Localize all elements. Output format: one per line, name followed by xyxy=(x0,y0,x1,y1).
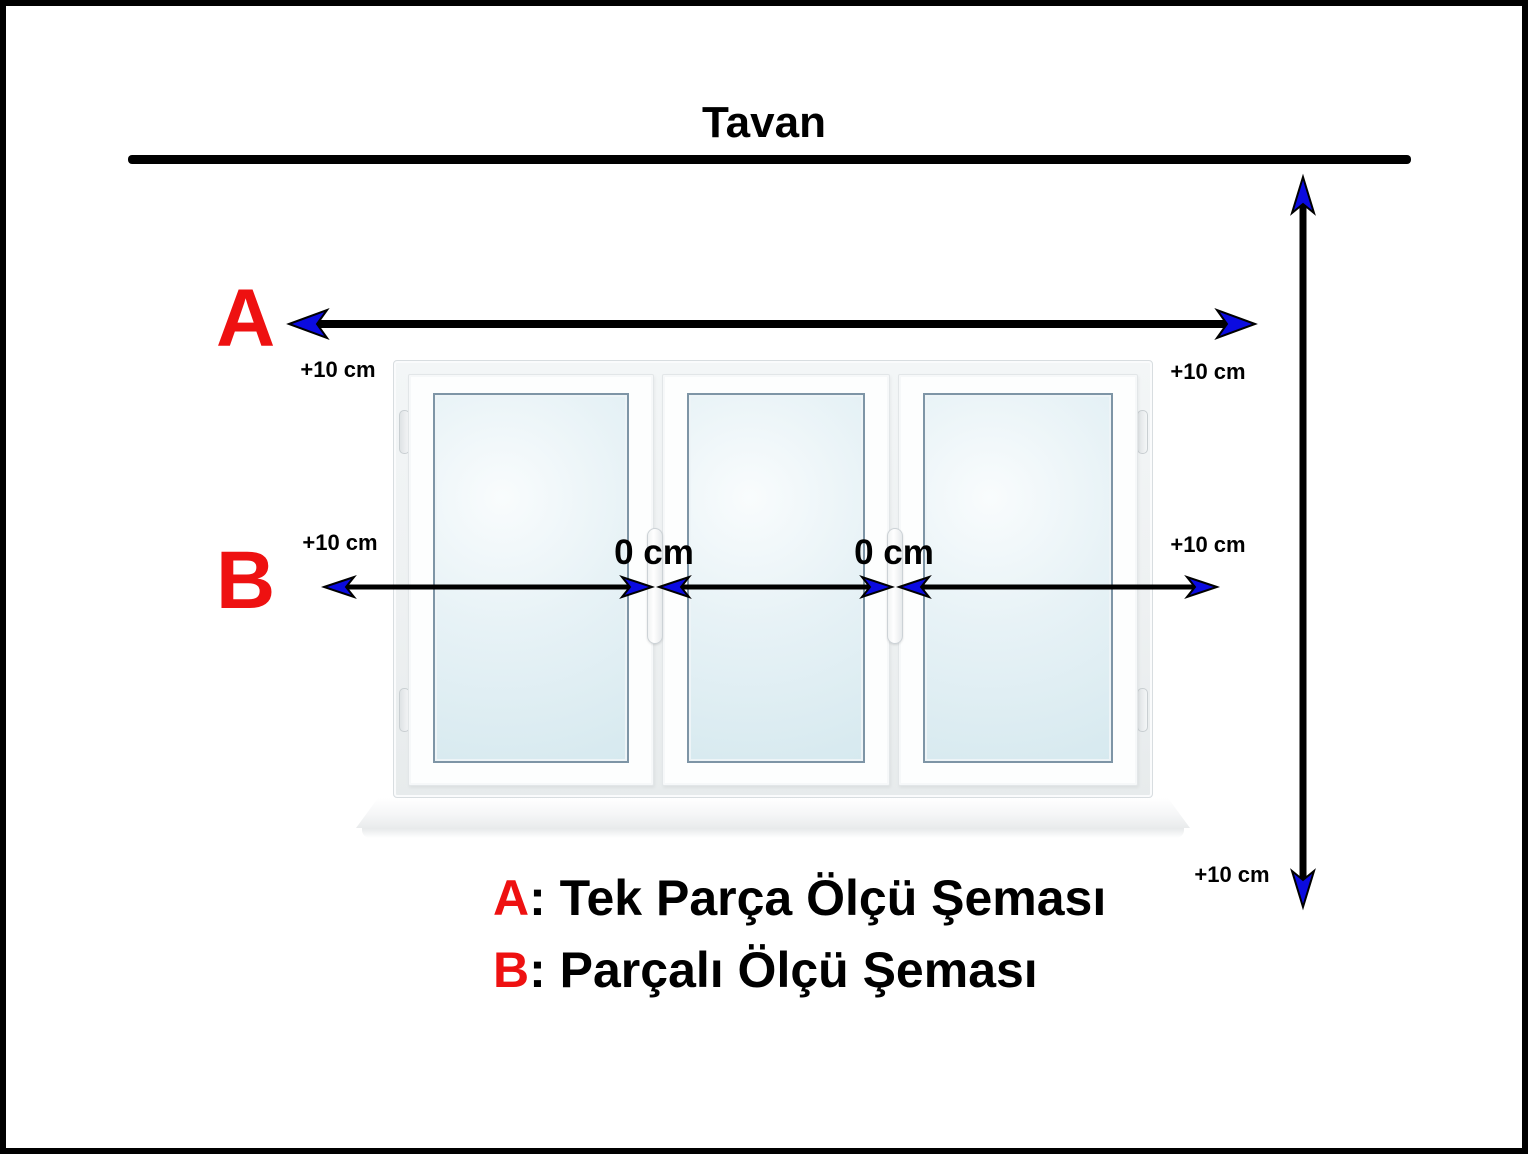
measure-arrow-b-segment-3 xyxy=(896,572,1220,602)
window-hinge-icon xyxy=(1137,410,1148,454)
offset-label-b-right: +10 cm xyxy=(1160,533,1256,557)
legend-item-b: B: Parçalı Ölçü Şeması xyxy=(493,934,1106,1006)
schema-b-letter: B xyxy=(216,540,275,622)
schema-a-letter: A xyxy=(216,278,275,360)
window-sill-shadow xyxy=(362,828,1184,838)
measure-arrow-b-segment-2 xyxy=(656,572,895,602)
legend-text-b: : Parçalı Ölçü Şeması xyxy=(529,942,1038,998)
legend-letter-b: B xyxy=(493,942,529,998)
vertical-measure-arrow xyxy=(1286,173,1320,913)
legend: A: Tek Parça Ölçü Şeması B: Parçalı Ölçü… xyxy=(493,862,1106,1006)
gap-label-1: 0 cm xyxy=(598,534,710,573)
diagram-title: Tavan xyxy=(6,98,1522,148)
gap-label-2: 0 cm xyxy=(838,534,950,573)
offset-label-b-left: +10 cm xyxy=(292,531,388,555)
offset-label-a-right: +10 cm xyxy=(1160,360,1256,384)
window-sill xyxy=(354,798,1192,828)
ceiling-line xyxy=(128,155,1411,164)
window-hinge-icon xyxy=(1137,688,1148,732)
measure-arrow-b-segment-1 xyxy=(321,572,655,602)
legend-item-a: A: Tek Parça Ölçü Şeması xyxy=(493,862,1106,934)
offset-label-vertical: +10 cm xyxy=(1184,863,1280,887)
measurement-diagram: Tavan A +10 cm +10 cm B +10 cm xyxy=(0,0,1528,1154)
offset-label-a-left: +10 cm xyxy=(290,358,386,382)
legend-letter-a: A xyxy=(493,870,529,926)
measure-arrow-a xyxy=(286,305,1258,343)
legend-text-a: : Tek Parça Ölçü Şeması xyxy=(529,870,1106,926)
